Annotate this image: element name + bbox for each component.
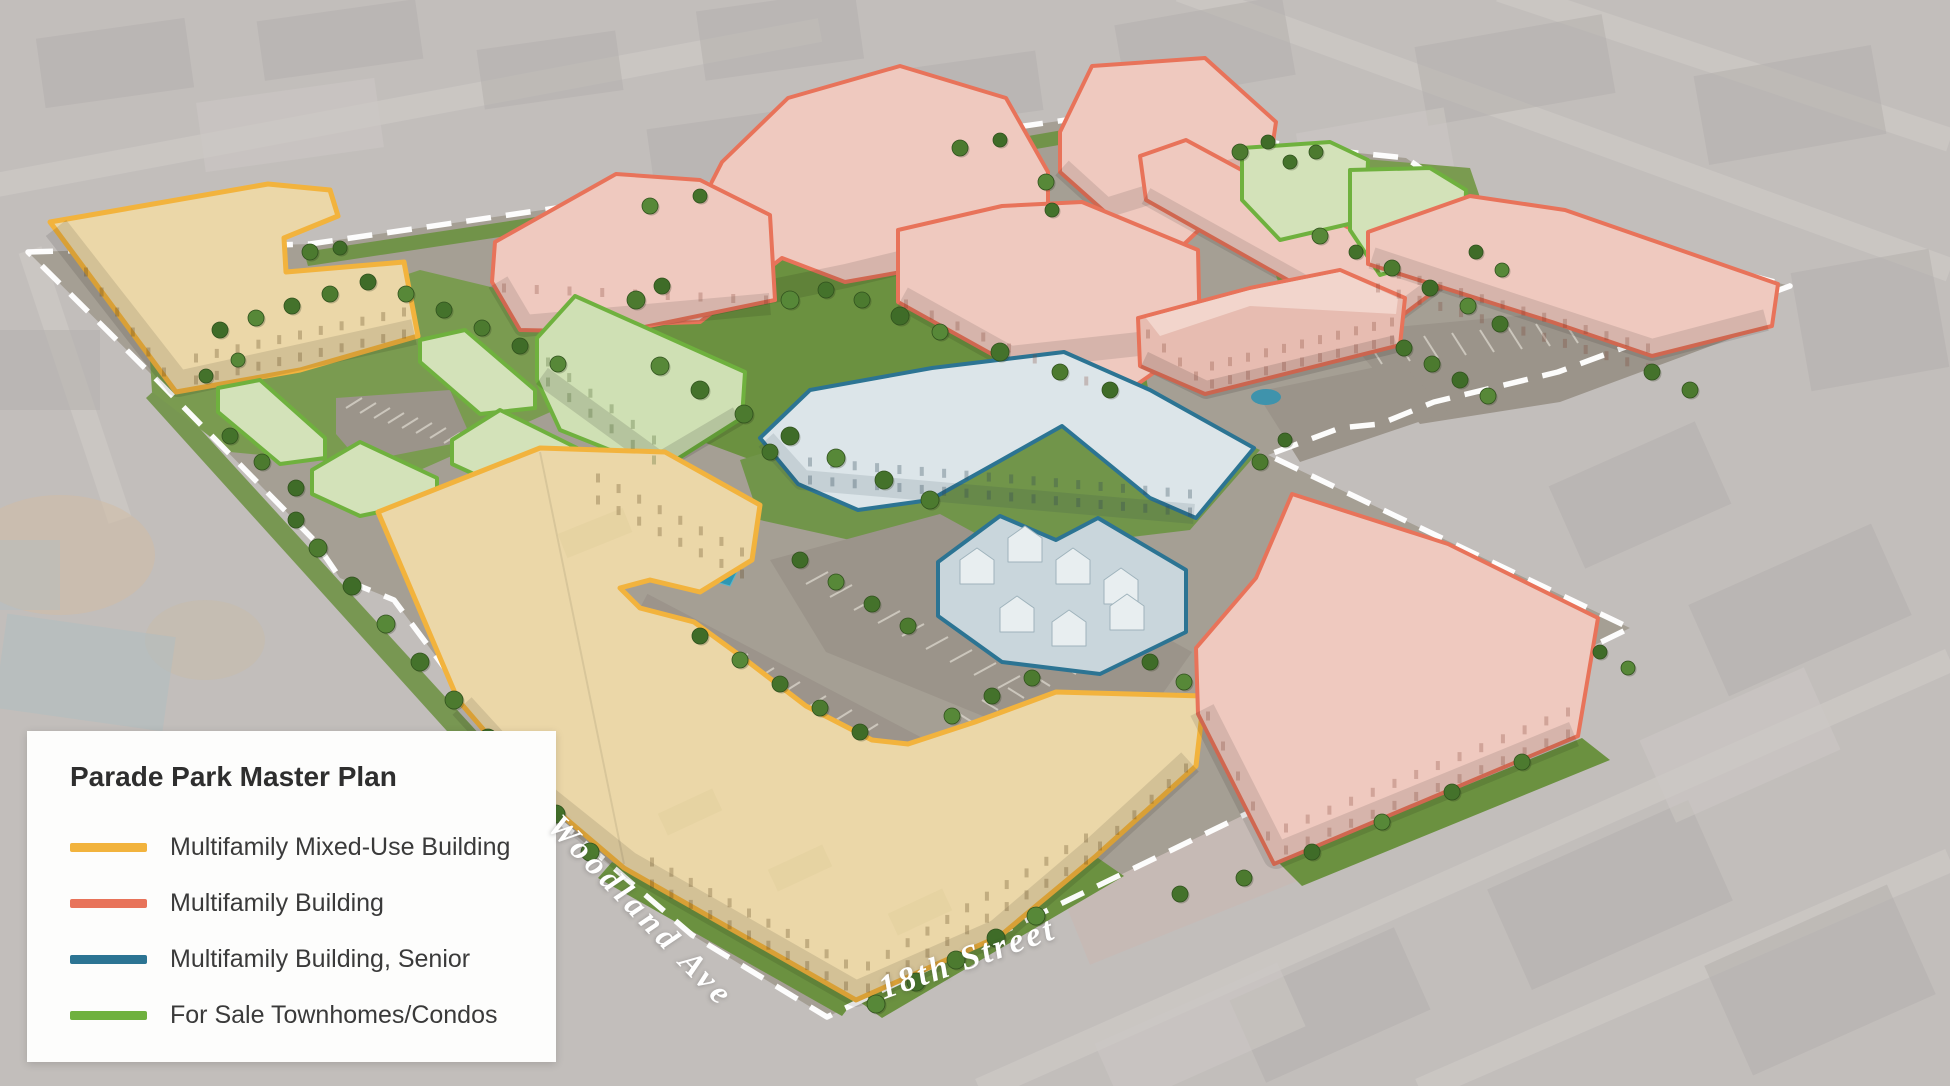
- legend-label: Multifamily Building, Senior: [170, 945, 470, 974]
- legend-item: Multifamily Building, Senior: [70, 931, 532, 987]
- legend-label: For Sale Townhomes/Condos: [170, 1001, 498, 1030]
- legend-items: Multifamily Mixed-Use BuildingMultifamil…: [70, 819, 532, 1043]
- legend-item: Multifamily Building: [70, 875, 532, 931]
- legend-swatch: [70, 843, 147, 852]
- legend-label: Multifamily Building: [170, 889, 384, 918]
- legend-swatch: [70, 955, 147, 964]
- legend-item: Multifamily Mixed-Use Building: [70, 819, 532, 875]
- legend-swatch: [70, 1011, 147, 1020]
- legend-title: Parade Park Master Plan: [70, 761, 532, 793]
- pond: [1251, 389, 1281, 405]
- legend-swatch: [70, 899, 147, 908]
- legend-panel: Parade Park Master Plan Multifamily Mixe…: [27, 731, 556, 1062]
- master-plan-figure: Parade Park Master Plan Multifamily Mixe…: [0, 0, 1950, 1086]
- legend-item: For Sale Townhomes/Condos: [70, 987, 532, 1043]
- legend-label: Multifamily Mixed-Use Building: [170, 833, 510, 862]
